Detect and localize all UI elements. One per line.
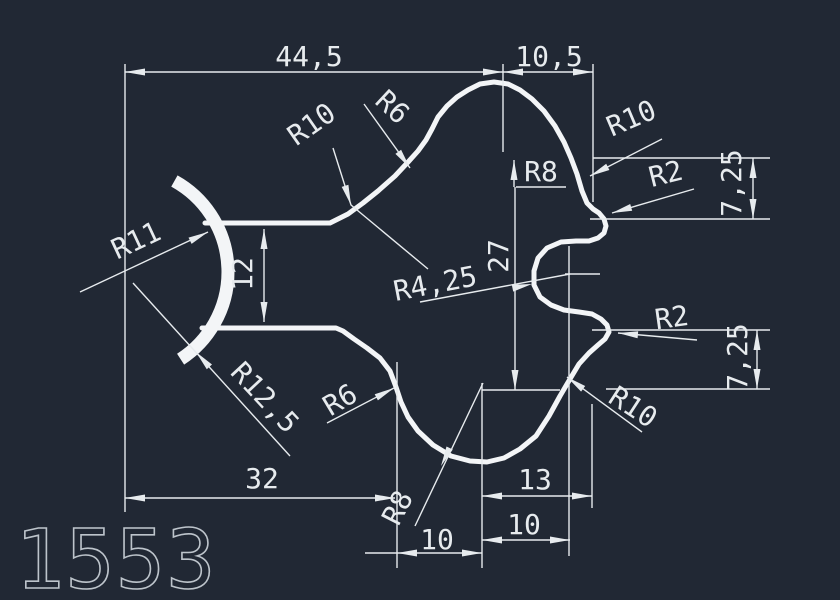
radius-label-r11: R11 <box>106 215 166 266</box>
cad-drawing-canvas: 44,5 10,5 32 13 10 10 12 27 7,25 7,25 R1… <box>0 0 840 600</box>
radius-label-r6-bottom: R6 <box>317 377 363 423</box>
dim-bottom-13: 13 <box>518 463 552 496</box>
radius-label-r10-upper-right: R10 <box>602 93 661 143</box>
radius-label-r2-upper: R2 <box>645 154 686 194</box>
cad-viewport[interactable]: 44,5 10,5 32 13 10 10 12 27 7,25 7,25 R1… <box>0 0 840 600</box>
dim-lower-right-height: 7,25 <box>721 323 754 390</box>
dim-body-height: 27 <box>482 239 515 273</box>
radius-label-r10-top-left: R10 <box>281 96 341 152</box>
dim-bottom-10-outer: 10 <box>420 523 454 556</box>
dim-upper-right-height: 7,25 <box>715 149 748 216</box>
radius-labels: R11 R12,5 R10 R6 R8 R10 R2 R4,25 R2 R10 … <box>106 83 691 530</box>
radius-label-r8-top: R8 <box>524 155 558 188</box>
radius-label-r2-lower: R2 <box>653 299 691 336</box>
dim-slot-height: 12 <box>226 257 259 291</box>
dim-bottom-width: 32 <box>245 462 279 495</box>
radius-label-r8-bottom: R8 <box>375 485 420 530</box>
radius-label-r10-lower: R10 <box>603 379 663 434</box>
radius-label-r4-25: R4,25 <box>391 259 480 307</box>
dim-total-width: 44,5 <box>275 40 342 73</box>
dim-top-right-width: 10,5 <box>515 40 582 73</box>
dim-bottom-10-inner: 10 <box>507 508 541 541</box>
part-number: 1553 <box>15 513 216 600</box>
radius-label-r6-top: R6 <box>369 83 416 130</box>
profile-c-channel-arc <box>174 181 228 359</box>
